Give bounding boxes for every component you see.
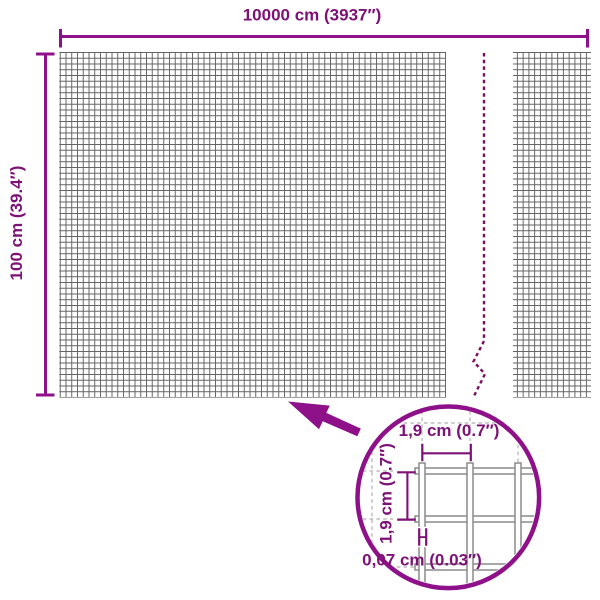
svg-text:0,07 cm (0.03″): 0,07 cm (0.03″) [362,551,482,570]
svg-text:1,9 cm (0.7″): 1,9 cm (0.7″) [377,443,396,544]
svg-text:10000 cm (3937″): 10000 cm (3937″) [243,5,382,24]
svg-text:100 cm (39.4″): 100 cm (39.4″) [7,166,26,281]
svg-text:1,9 cm (0.7″): 1,9 cm (0.7″) [399,421,500,440]
